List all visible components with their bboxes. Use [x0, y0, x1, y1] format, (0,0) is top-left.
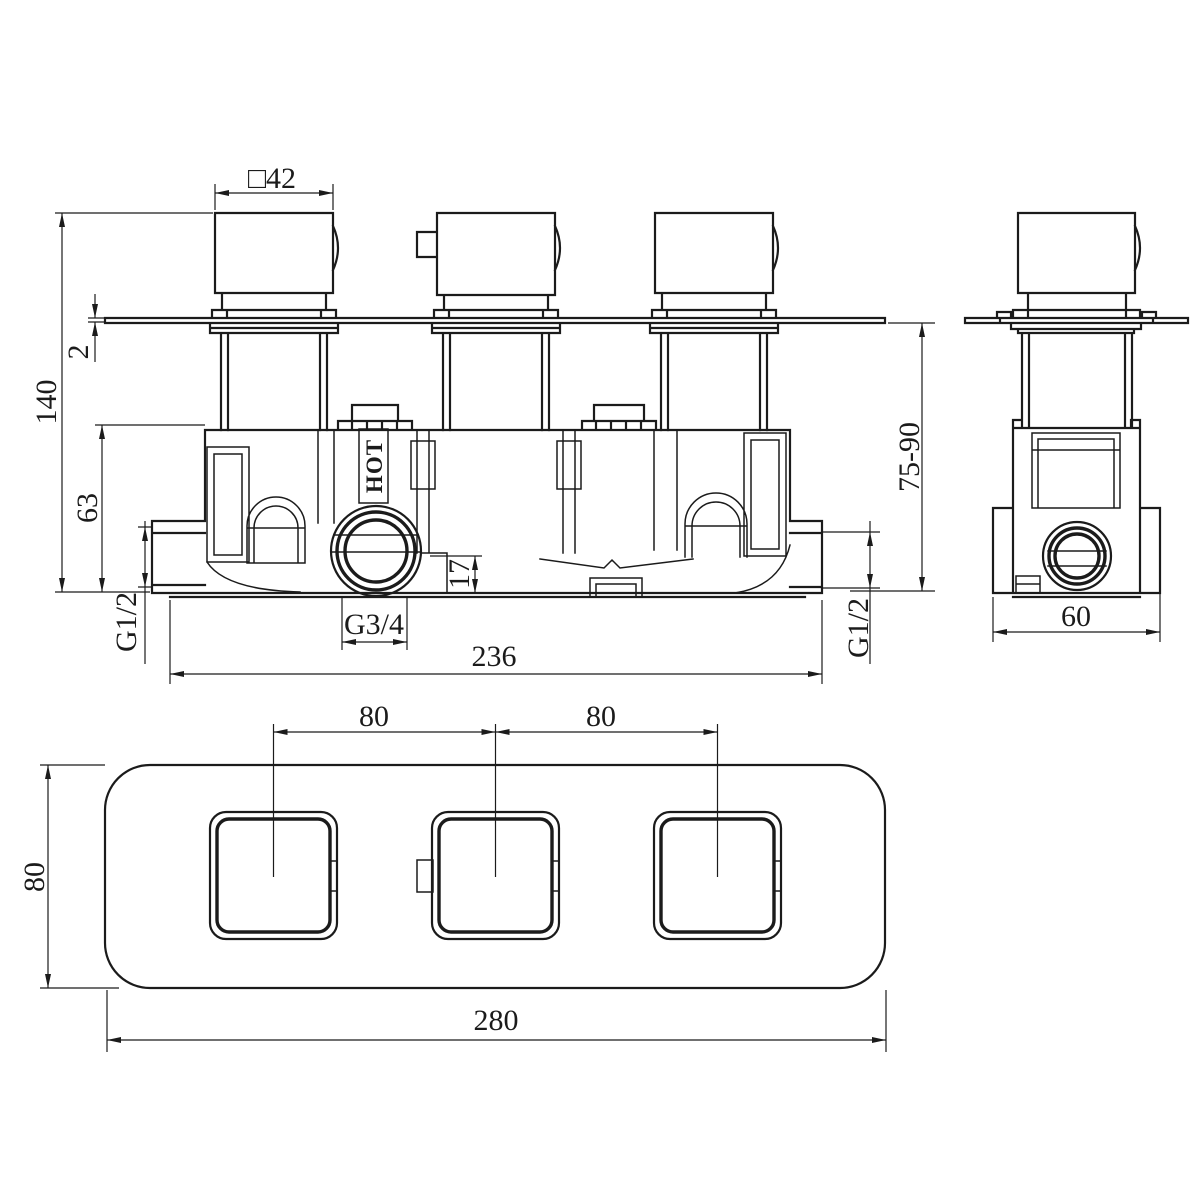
dim-valve-body-width: 236 [472, 640, 517, 673]
front-dimension-lines [55, 184, 880, 684]
side-view [965, 213, 1188, 597]
drawing-canvas: HOT □42 2 140 63 G1/2 G3/4 17 236 G1/2 7… [0, 0, 1200, 1200]
dim-body-height: 63 [71, 493, 104, 523]
front-view: HOT [105, 213, 885, 597]
side-internals [1016, 433, 1120, 593]
side-outlet-circle-mid [1049, 528, 1105, 584]
dim-handle-width: □42 [248, 162, 296, 195]
dim-handle-pitch-right: 80 [586, 700, 616, 733]
front-body-outline [152, 405, 822, 597]
dim-left-inlet-thread: G1/2 [110, 592, 143, 652]
plan-detail-tabs [330, 860, 781, 892]
side-outlet-circle-outer [1043, 522, 1111, 590]
technical-drawing: HOT □42 2 140 63 G1/2 G3/4 17 236 G1/2 7… [0, 0, 1200, 1200]
side-outlet-circle-inner [1055, 534, 1099, 578]
plan-dimension-arrows [45, 729, 886, 1043]
dim-plate-width: 280 [474, 1004, 519, 1037]
front-handles-plate-outline [105, 213, 885, 430]
dim-outlet-step-height: 17 [443, 559, 476, 589]
front-outlet-circle-inner [345, 520, 407, 582]
dim-mounting-depth-range: 75-90 [893, 422, 926, 492]
dim-plate-thickness: 2 [62, 345, 95, 360]
plan-dimension-lines [40, 732, 886, 1052]
dim-handle-pitch-left: 80 [359, 700, 389, 733]
side-outline [965, 213, 1188, 597]
dim-overall-height: 140 [30, 380, 63, 425]
plan-dimensions: 80 80 80 280 [18, 700, 886, 1052]
plan-view [105, 724, 885, 988]
plan-center-lines [274, 724, 718, 877]
front-body-internals [207, 429, 790, 597]
hot-label: HOT [362, 439, 387, 493]
dim-plate-height: 80 [18, 862, 51, 892]
dim-body-depth: 60 [1061, 600, 1091, 633]
front-dimensions: □42 2 140 63 G1/2 G3/4 17 236 G1/2 [30, 162, 880, 684]
dim-bottom-outlet-thread: G3/4 [344, 608, 404, 641]
front-outlet-circle-mid [337, 512, 415, 590]
dim-right-inlet-thread: G1/2 [842, 598, 875, 658]
